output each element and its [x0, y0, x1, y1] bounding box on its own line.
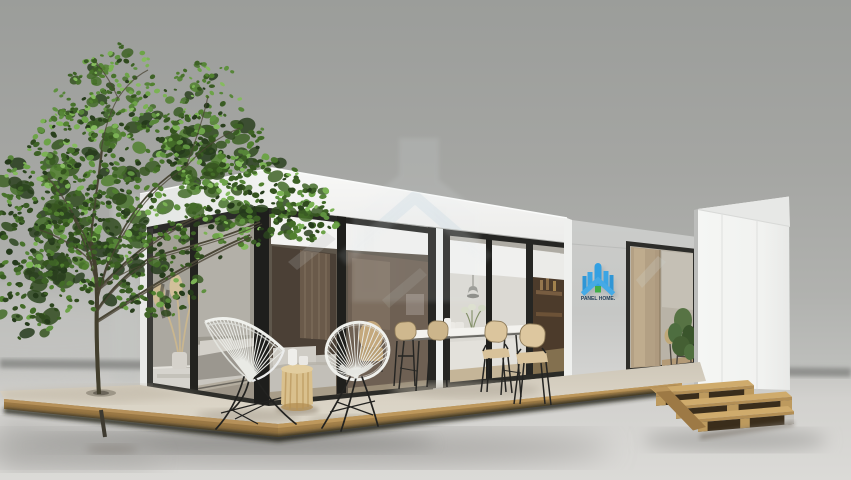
svg-text:PANEL HOME.: PANEL HOME.	[581, 296, 616, 302]
